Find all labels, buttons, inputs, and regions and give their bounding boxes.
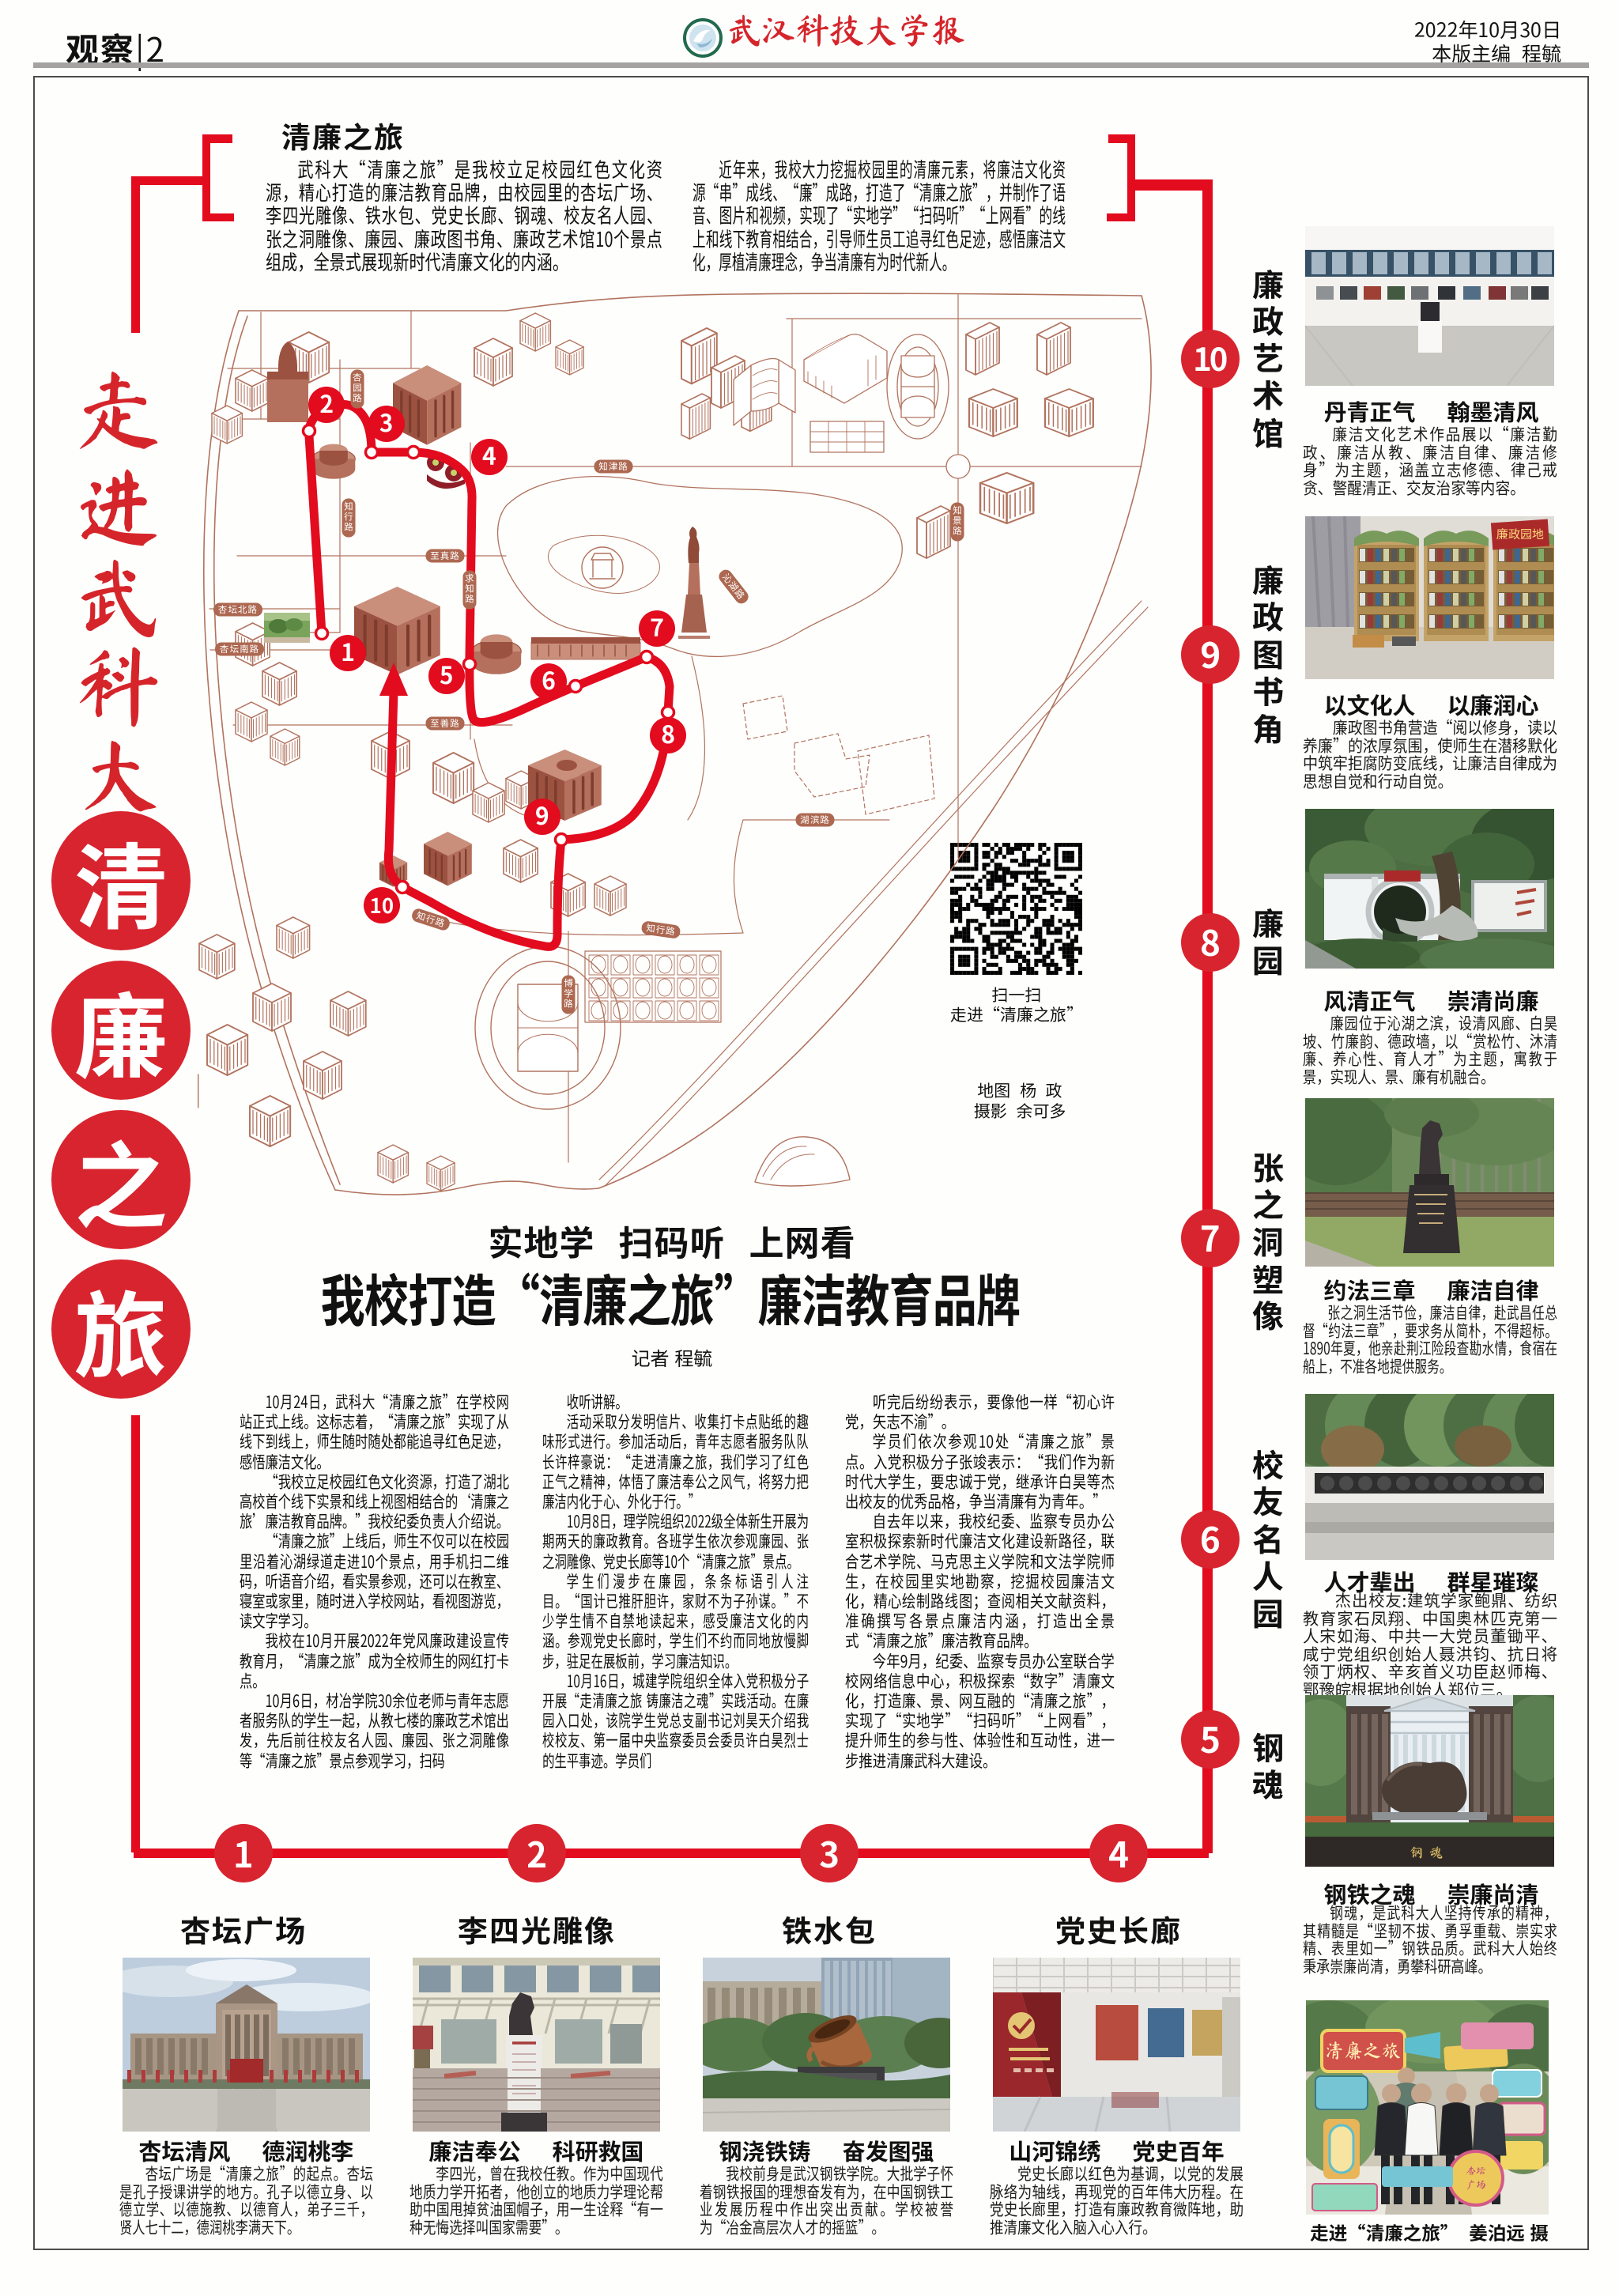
- svg-text:1: 1: [341, 633, 355, 668]
- svg-text:路: 路: [953, 525, 962, 538]
- svg-text:至善路: 至善路: [430, 717, 460, 730]
- svg-text:3: 3: [379, 404, 394, 439]
- svg-text:知津路: 知津路: [598, 460, 628, 473]
- svg-text:杏坛北路: 杏坛北路: [218, 603, 258, 616]
- svg-text:10: 10: [370, 890, 394, 920]
- svg-text:路: 路: [344, 521, 353, 534]
- svg-text:路: 路: [564, 998, 573, 1010]
- svg-text:廉政园地: 廉政园地: [1496, 526, 1544, 542]
- svg-text:杏坛南路: 杏坛南路: [220, 643, 259, 655]
- svg-text:8: 8: [661, 716, 675, 750]
- svg-text:知行路: 知行路: [645, 921, 676, 938]
- svg-text:钢魂: 钢魂: [1410, 1846, 1449, 1860]
- svg-text:至真路: 至真路: [430, 549, 460, 562]
- svg-text:广场: 广场: [1466, 2180, 1486, 2190]
- svg-text:杏坛: 杏坛: [1466, 2166, 1486, 2176]
- svg-text:4: 4: [482, 437, 496, 472]
- svg-text:7: 7: [650, 609, 664, 644]
- svg-text:9: 9: [535, 797, 549, 832]
- svg-text:5: 5: [440, 656, 454, 691]
- svg-text:清廉之旅: 清廉之旅: [1325, 2041, 1401, 2060]
- svg-text:路: 路: [353, 392, 362, 405]
- svg-text:2: 2: [319, 385, 334, 420]
- svg-text:6: 6: [542, 662, 556, 697]
- svg-text:湖滨路: 湖滨路: [800, 814, 830, 826]
- svg-text:路: 路: [465, 593, 474, 606]
